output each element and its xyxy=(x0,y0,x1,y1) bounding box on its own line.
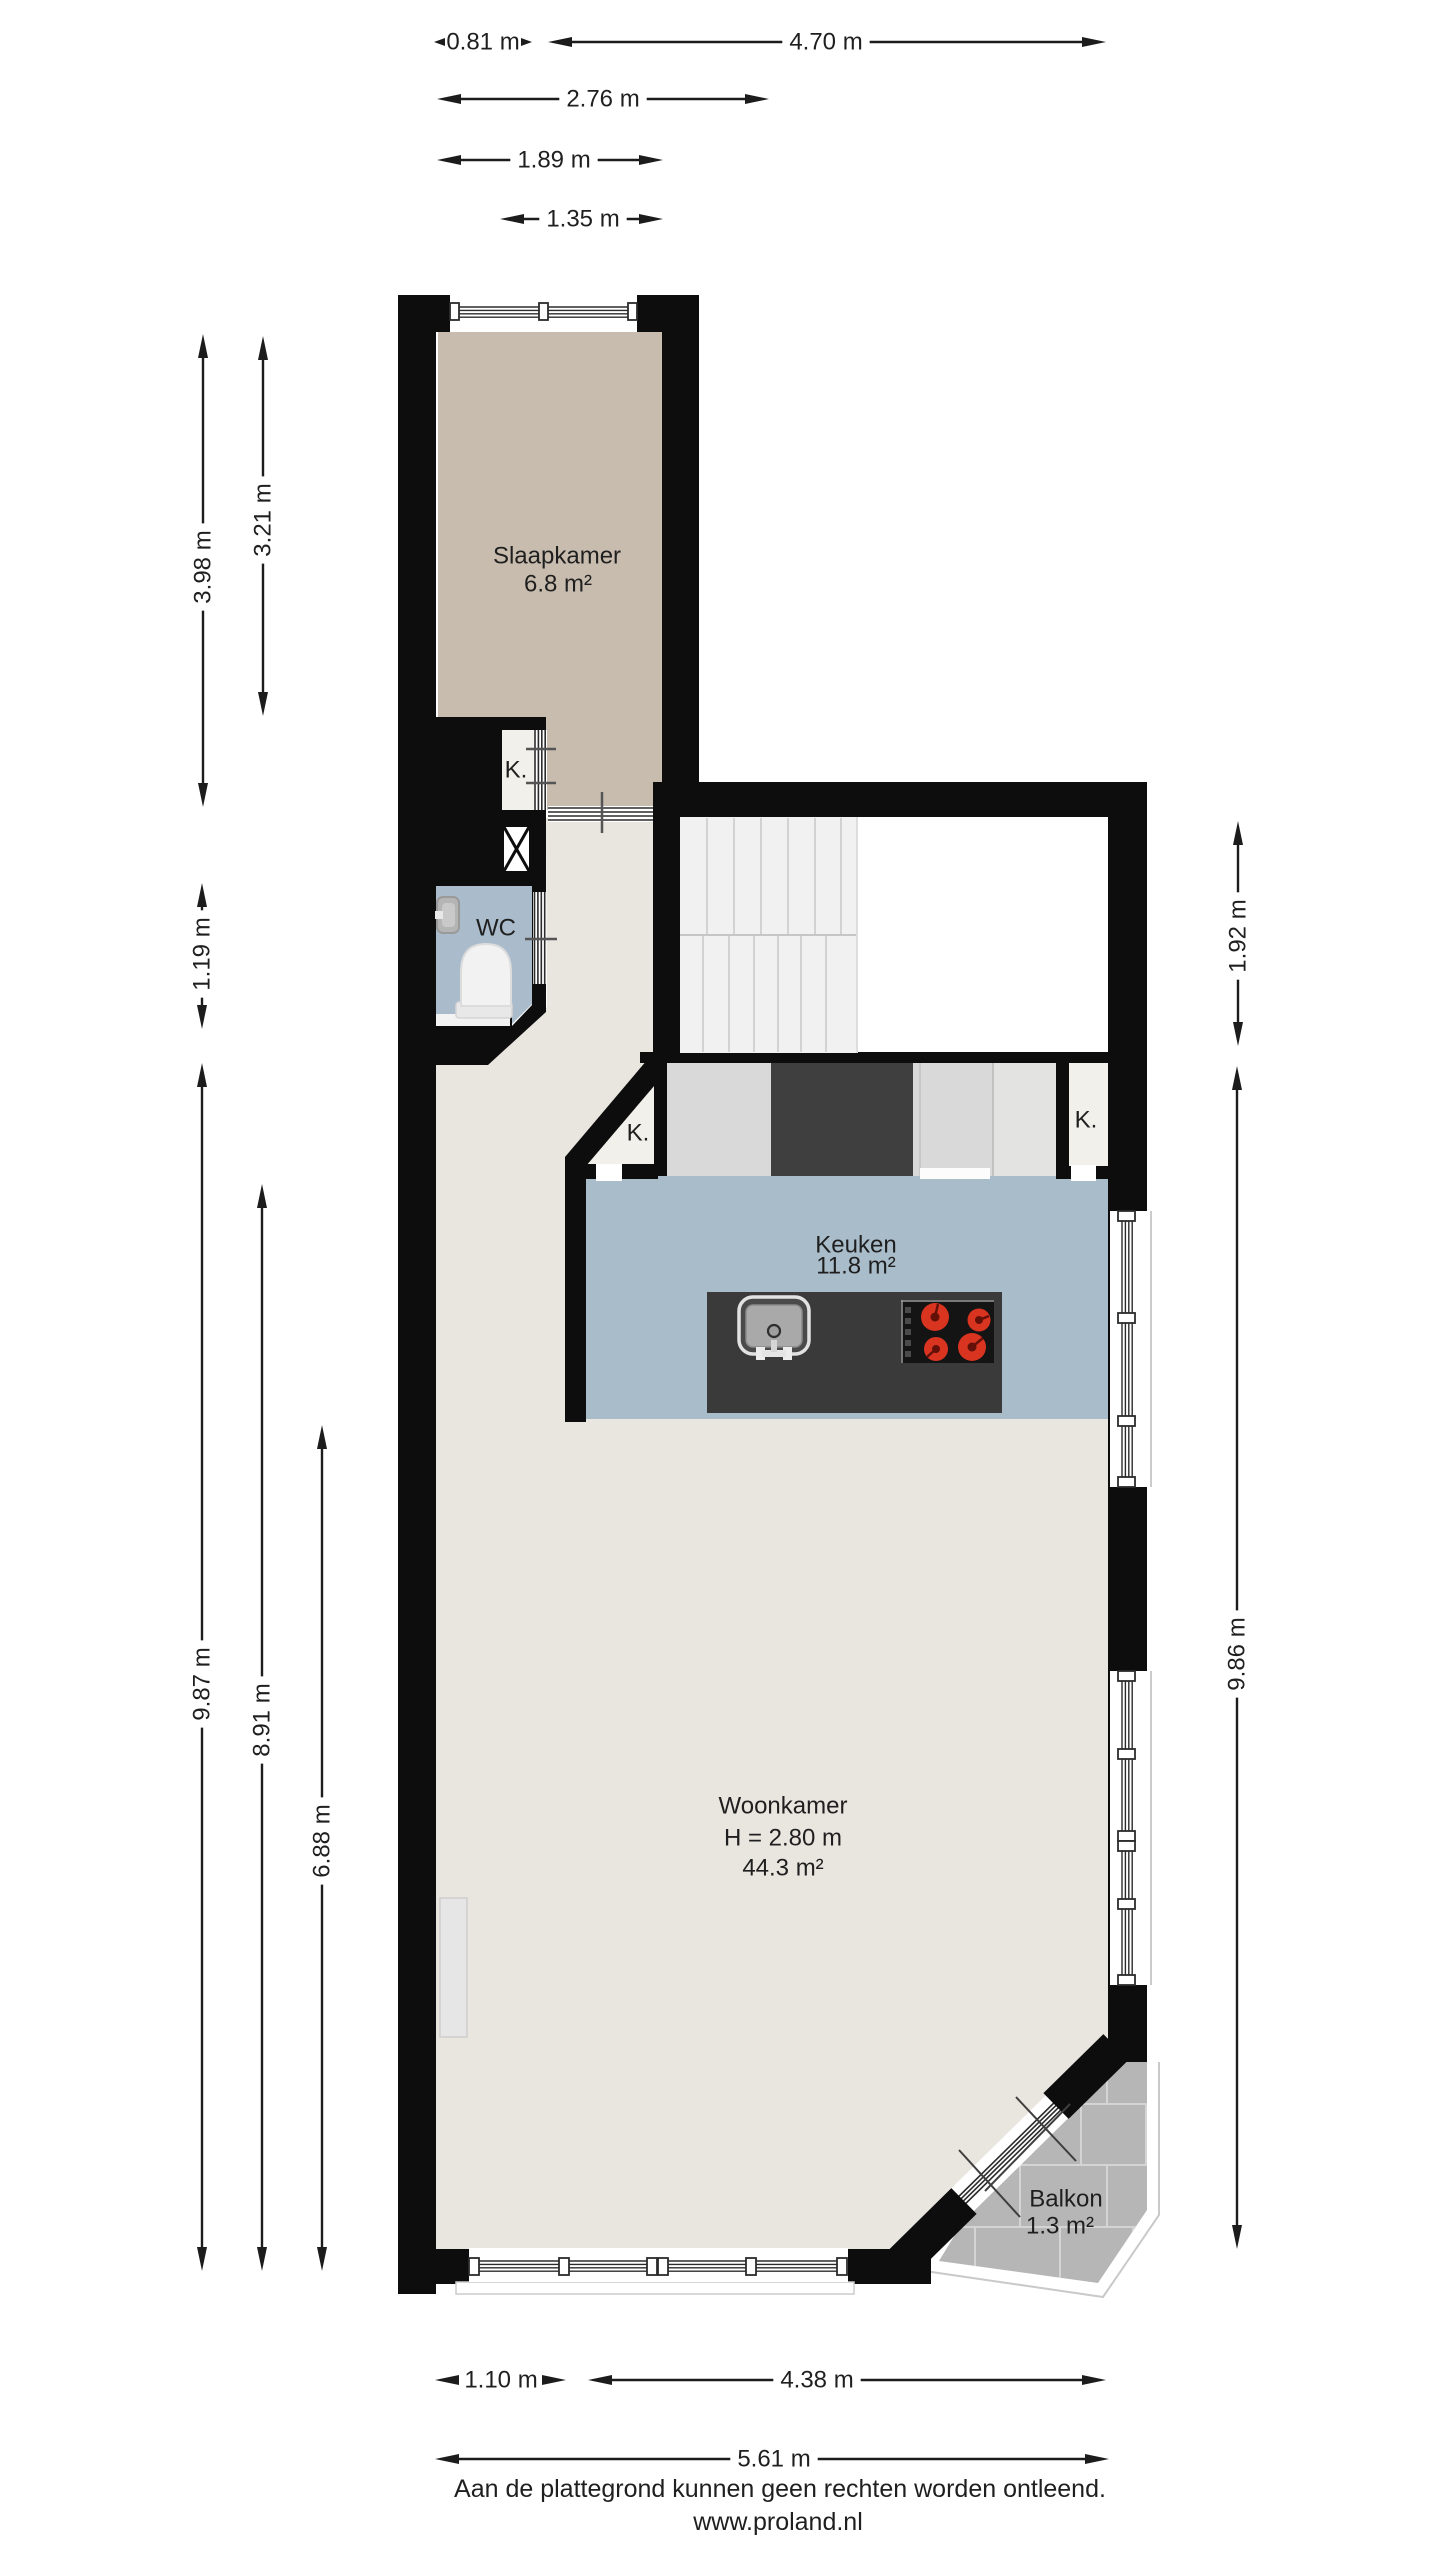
svg-text:3.98 m: 3.98 m xyxy=(190,530,217,603)
svg-text:3.21 m: 3.21 m xyxy=(250,483,277,556)
svg-text:6.8 m²: 6.8 m² xyxy=(524,571,592,598)
svg-text:1.89 m: 1.89 m xyxy=(517,147,590,174)
svg-text:www.proland.nl: www.proland.nl xyxy=(692,2508,863,2536)
svg-text:K.: K. xyxy=(627,1120,650,1147)
svg-text:Balkon: Balkon xyxy=(1029,2186,1102,2213)
svg-text:9.87 m: 9.87 m xyxy=(189,1647,216,1720)
svg-text:4.70 m: 4.70 m xyxy=(789,29,862,56)
svg-text:5.61 m: 5.61 m xyxy=(737,2446,810,2473)
svg-text:1.35 m: 1.35 m xyxy=(546,206,619,233)
svg-text:K.: K. xyxy=(505,757,528,784)
svg-text:WC: WC xyxy=(476,915,516,942)
svg-text:Woonkamer: Woonkamer xyxy=(719,1793,848,1820)
svg-text:6.88 m: 6.88 m xyxy=(309,1804,336,1877)
svg-text:0.81 m: 0.81 m xyxy=(446,29,519,56)
svg-text:1.19 m: 1.19 m xyxy=(189,917,216,990)
svg-text:44.3 m²: 44.3 m² xyxy=(742,1855,823,1882)
svg-text:K.: K. xyxy=(1075,1107,1098,1134)
svg-text:9.86 m: 9.86 m xyxy=(1224,1617,1251,1690)
svg-text:H = 2.80 m: H = 2.80 m xyxy=(724,1825,842,1852)
svg-text:1.3 m²: 1.3 m² xyxy=(1026,2213,1094,2240)
svg-text:2.76 m: 2.76 m xyxy=(566,86,639,113)
svg-text:1.10 m: 1.10 m xyxy=(464,2367,537,2394)
svg-text:4.38 m: 4.38 m xyxy=(780,2367,853,2394)
svg-text:Slaapkamer: Slaapkamer xyxy=(493,543,621,570)
svg-text:Aan de plattegrond kunnen geen: Aan de plattegrond kunnen geen rechten w… xyxy=(454,2475,1106,2503)
svg-text:8.91 m: 8.91 m xyxy=(249,1683,276,1756)
svg-text:1.92 m: 1.92 m xyxy=(1225,899,1252,972)
svg-text:11.8 m²: 11.8 m² xyxy=(816,1253,896,1280)
